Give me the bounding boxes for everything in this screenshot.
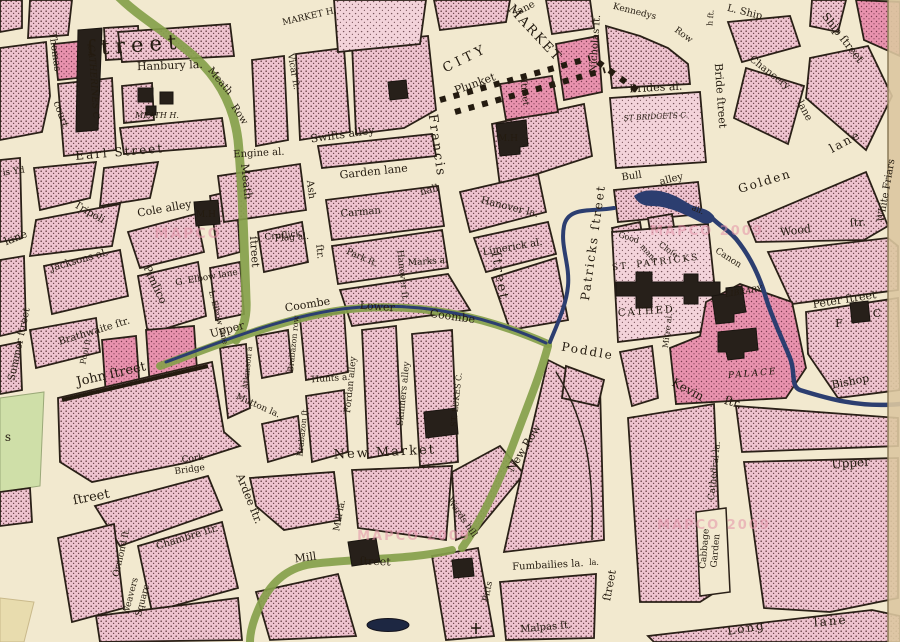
map-canvas: MAPCO MAPCO 2009 MAPCO 2009 MAPCO 2009 ſ… xyxy=(0,0,900,642)
city-block xyxy=(296,48,350,140)
city-block xyxy=(434,0,510,30)
label-meeting-house: M.H xyxy=(498,134,518,144)
label-ash-street-1: Ash xyxy=(304,179,318,201)
label-lower-coombe-1: Lower xyxy=(359,299,396,314)
label-meath-street-2: ſtreet xyxy=(247,236,262,269)
label-canon-alley: Canon xyxy=(713,246,743,270)
label-hanbury-lane: Hanbury la. xyxy=(137,58,203,73)
label-city-market-1: CITY xyxy=(440,42,490,77)
label-wood-street-2: ſtr. xyxy=(849,215,866,229)
label-brides-alley: Brides al. xyxy=(629,80,683,96)
label-is-yard: is Yd xyxy=(2,165,25,178)
mill-pond xyxy=(367,619,409,632)
label-mill-street-2: ſtreet xyxy=(359,554,391,568)
building-block xyxy=(160,92,173,104)
label-brabazon-street: Brabazon ſt. xyxy=(295,406,309,456)
building-block xyxy=(138,88,153,102)
label-golden-lane-1: Golden xyxy=(736,166,793,196)
label-fumbailies-lane: Fumbailies la. xyxy=(512,558,584,573)
label-street-fragment-top: h ſt. xyxy=(705,9,715,26)
label-engine-alley: Engine al. xyxy=(233,147,285,161)
mapco-watermark: MAPCO 2009 xyxy=(357,529,471,544)
label-plunket-street-1: Plunket xyxy=(453,70,498,97)
page-edge-strip xyxy=(888,0,900,642)
label-lane-fragment: la. xyxy=(589,558,599,567)
label-long-lane-2: lane xyxy=(813,613,848,630)
city-block xyxy=(334,0,426,52)
label-bull-alley-1: Bull xyxy=(621,170,643,184)
label-market-house: MARKET H. xyxy=(281,6,337,28)
building-block xyxy=(388,80,408,100)
label-french-church-f: F xyxy=(835,317,843,330)
label-bride-street: Bride ſtreet xyxy=(712,63,730,129)
label-french-church-c: C xyxy=(873,307,881,320)
label-little-ship-street: L. Ship xyxy=(726,3,763,22)
building-block xyxy=(452,558,474,578)
city-block xyxy=(218,164,306,222)
antique-map-scan: MAPCO MAPCO 2009 MAPCO 2009 MAPCO 2009 ſ… xyxy=(0,0,900,642)
label-hunts-alley: Hunts a. xyxy=(311,373,351,386)
city-block xyxy=(0,0,22,32)
label-patrick-street: Patricks ſtreet xyxy=(578,183,608,301)
city-block xyxy=(362,326,402,458)
mapco-watermark: MAPCO 2009 xyxy=(650,224,764,239)
city-block xyxy=(0,488,32,526)
mapco-watermark: MAPCO 2009 xyxy=(657,518,771,533)
city-block xyxy=(546,0,594,34)
label-s-fragment: s xyxy=(5,430,11,444)
city-block xyxy=(252,56,288,146)
city-block xyxy=(648,610,900,642)
city-block xyxy=(100,162,158,206)
label-meath-hospital-earl: MEATH H. xyxy=(134,111,179,120)
city-block xyxy=(744,458,898,612)
label-ash-street-2: ſtr. xyxy=(313,244,325,260)
label-thomas-court-1: Thomas xyxy=(46,31,62,72)
label-kennedys-row-1: Kennedys xyxy=(612,2,658,22)
label-new-street: ſtreet xyxy=(600,568,619,602)
paper-patch xyxy=(0,598,34,642)
city-block xyxy=(34,162,96,210)
city-block xyxy=(300,312,348,380)
label-kennedys-row-2: Row xyxy=(672,25,694,45)
label-poddle: Poddle xyxy=(560,340,615,363)
city-block xyxy=(728,16,800,62)
city-block xyxy=(562,366,604,406)
city-block xyxy=(620,346,658,406)
city-block xyxy=(0,42,50,140)
city-block xyxy=(610,92,706,168)
label-meath-hospital: M.H xyxy=(196,210,216,220)
mapco-watermark: MAPCO xyxy=(154,226,221,242)
city-block xyxy=(736,406,898,452)
